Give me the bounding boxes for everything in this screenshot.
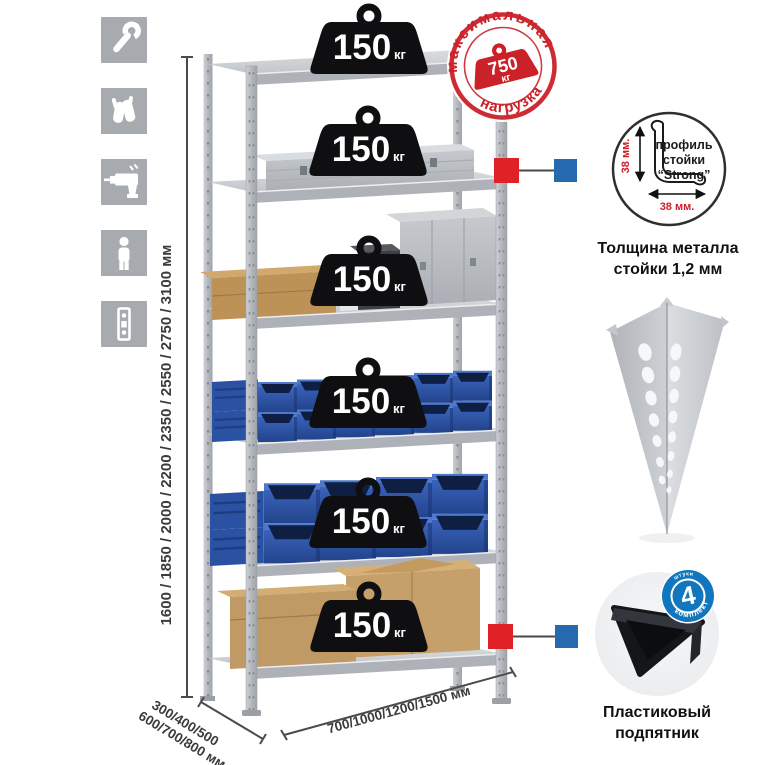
profile-label-1: профиль	[655, 138, 712, 152]
rack-post-back-left	[204, 54, 213, 700]
profile-dim-horizontal: 38 мм.	[660, 201, 695, 213]
height-dimension: 1600 / 1850 / 2000 / 2200 / 2350 / 2550 …	[158, 57, 193, 697]
plastic-foot-caption: Пластиковый подпятник	[603, 704, 711, 742]
weight-unit: кг	[394, 279, 407, 294]
svg-text:подпятник: подпятник	[615, 725, 700, 742]
height-dimension-label: 1600 / 1850 / 2000 / 2200 / 2350 / 2550 …	[158, 245, 175, 626]
max-load-stamp: максимальная нагрузка 750 кг	[431, 0, 573, 135]
rack-post-front-right	[496, 52, 507, 702]
weight-badge-1: 150 кг	[310, 7, 427, 74]
profile-label-2: стойки	[663, 153, 705, 167]
profile-dim-vertical: 38 мм.	[620, 139, 632, 174]
plastic-foot-circle: 4 штуки в комплекте	[595, 563, 721, 696]
weight-unit: кг	[393, 521, 406, 536]
metal-thickness-caption: Толщина металла стойки 1,2 мм	[597, 240, 738, 278]
svg-text:Толщина металла: Толщина металла	[597, 240, 738, 257]
width-dimension-label: 700/1000/1200/1500 мм	[326, 683, 472, 736]
callout-top	[494, 158, 577, 183]
weight-badge-4: 150 кг	[309, 361, 426, 428]
weight-unit: кг	[393, 401, 406, 416]
weight-value: 150	[332, 130, 390, 169]
callout-blue-square-top	[554, 159, 577, 182]
callout-red-square-top	[494, 158, 519, 183]
callout-blue-square-bottom	[555, 625, 578, 648]
weight-badge-2: 150 кг	[309, 109, 426, 176]
product-infographic: 1600 / 1850 / 2000 / 2200 / 2350 / 2550 …	[0, 0, 765, 765]
weight-value: 150	[333, 606, 391, 645]
weight-unit: кг	[394, 47, 407, 62]
weight-unit: кг	[394, 625, 407, 640]
svg-text:стойки 1,2 мм: стойки 1,2 мм	[614, 261, 723, 278]
rack-post-front-left	[246, 66, 257, 714]
callout-red-square-bottom	[488, 624, 513, 649]
width-dimension: 700/1000/1200/1500 мм	[281, 667, 516, 740]
weight-unit: кг	[393, 149, 406, 164]
svg-text:Пластиковый: Пластиковый	[603, 704, 711, 721]
weight-value: 150	[332, 502, 390, 541]
weight-value: 150	[332, 382, 390, 421]
rack-illustration: 1600 / 1850 / 2000 / 2200 / 2350 / 2550 …	[0, 0, 765, 765]
profile-detail-circle: 38 мм. 38 мм. профиль стойки “Strong”	[613, 113, 725, 225]
weight-value: 150	[333, 28, 391, 67]
corner-post-image	[606, 297, 729, 543]
callout-bottom	[488, 624, 578, 649]
weight-value: 150	[333, 260, 391, 299]
profile-label-3: “Strong”	[658, 168, 711, 182]
